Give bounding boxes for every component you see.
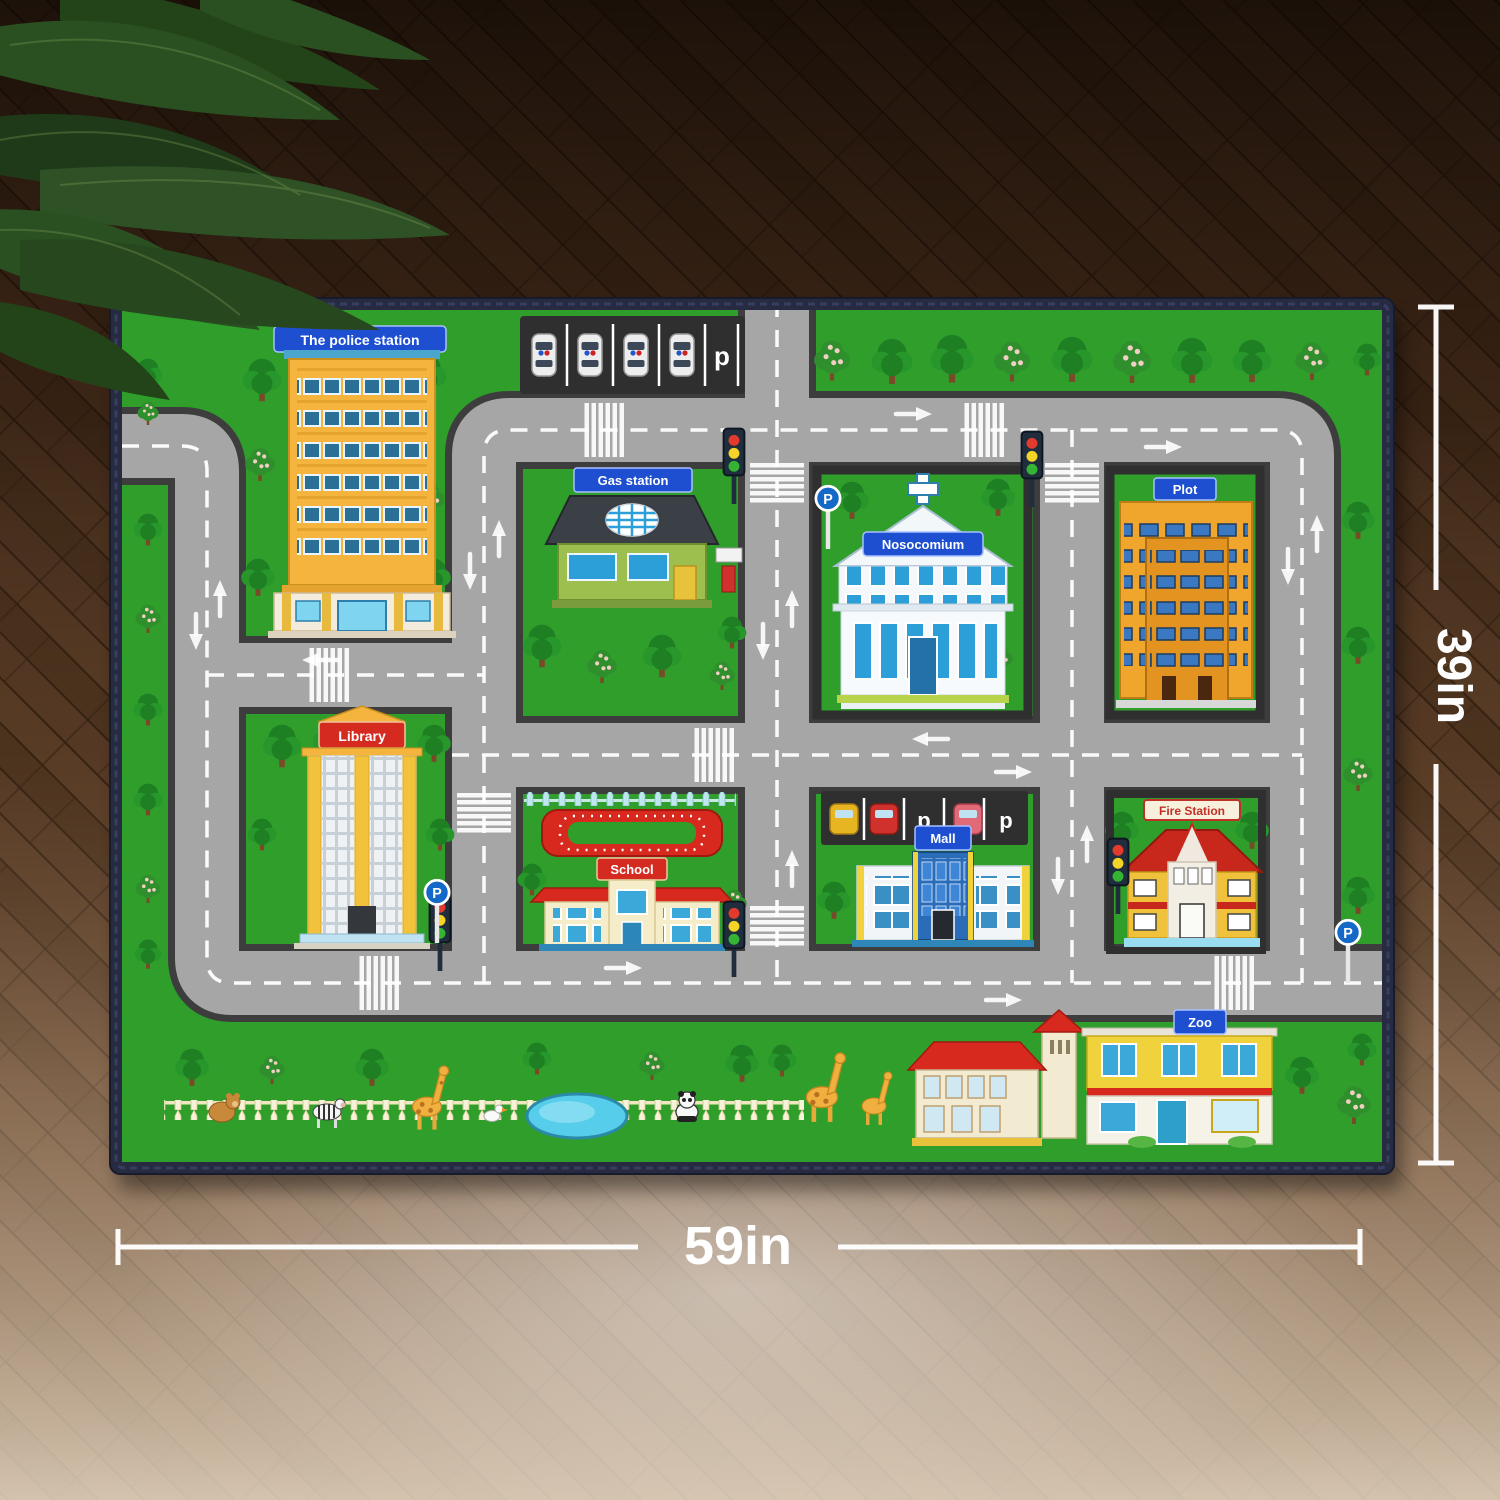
- fire-station-sign-label: Fire Station: [1159, 804, 1225, 818]
- parked-police-car: [578, 334, 602, 376]
- zoo-panda: [676, 1091, 698, 1122]
- parking-lot-letter: p: [714, 341, 730, 371]
- school-fence: [524, 792, 736, 806]
- shrub: [1128, 1136, 1156, 1148]
- library-sign-label: Library: [338, 728, 386, 744]
- school-sign-label: School: [610, 862, 653, 877]
- width-dimension-label: 59in: [684, 1216, 792, 1276]
- plot-sign-label: Plot: [1173, 482, 1198, 497]
- parked-yellow-car: [830, 804, 858, 834]
- height-dimension-label: 39in: [1427, 628, 1480, 724]
- play-rug: p The police station: [110, 298, 1402, 1190]
- svg-text:P: P: [432, 886, 442, 902]
- gas-price-sign: [716, 548, 742, 562]
- zoo-shop-window: [1212, 1100, 1258, 1132]
- parked-police-car: [532, 334, 556, 376]
- shrub: [1228, 1136, 1256, 1148]
- parked-police-car: [624, 334, 648, 376]
- mall-sign-label: Mall: [930, 831, 955, 846]
- running-track: [542, 810, 722, 856]
- zoo-building: Zoo: [1082, 1010, 1277, 1148]
- parked-red-car: [870, 804, 898, 834]
- hospital-cross-icon: [908, 483, 938, 495]
- mailbox: [722, 566, 735, 592]
- parking-lot-letter: p: [999, 808, 1012, 833]
- gas-station-sign-label: Gas station: [598, 473, 669, 488]
- police-station-building: The police station: [268, 326, 456, 638]
- zoo-sign-label: Zoo: [1188, 1015, 1212, 1030]
- hospital-sign-label: Nosocomium: [882, 537, 964, 552]
- product-photo: p The police station: [0, 0, 1500, 1500]
- parked-police-car: [670, 334, 694, 376]
- svg-text:P: P: [1343, 926, 1353, 942]
- scene: p The police station: [0, 0, 1500, 1500]
- parking-sign-letter: P: [823, 492, 833, 508]
- police-station-sign-label: The police station: [300, 332, 419, 348]
- parking-lot-top: p: [520, 316, 745, 394]
- plot-building: Plot: [1110, 470, 1260, 715]
